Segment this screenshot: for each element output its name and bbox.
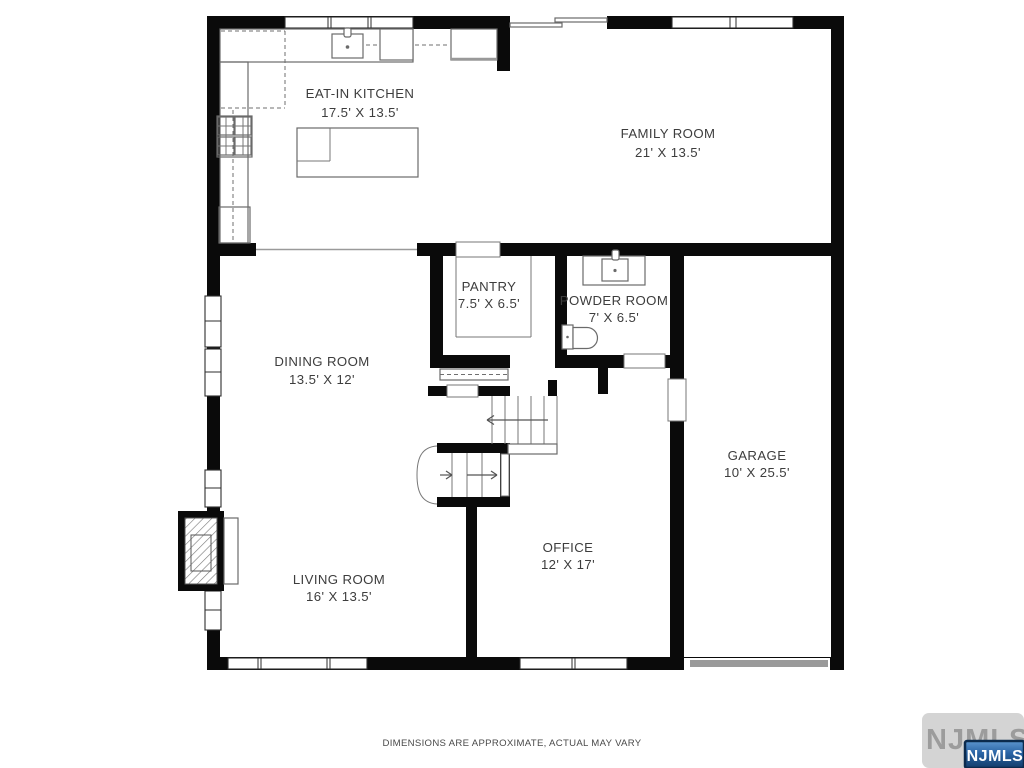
powder-room-door xyxy=(624,354,665,368)
wall-pantry-bottom xyxy=(430,355,510,368)
room-label-dining-room: DINING ROOM xyxy=(274,354,369,369)
stair-landing xyxy=(508,444,557,454)
room-label-family-room: FAMILY ROOM xyxy=(621,126,716,141)
wall-office-living xyxy=(466,507,477,658)
wall-garage-left xyxy=(670,243,684,658)
room-dims-pantry: 7.5' X 6.5' xyxy=(458,296,520,311)
staircase-down xyxy=(417,446,497,504)
wall-pantry-left xyxy=(430,256,443,355)
garage-door xyxy=(684,658,830,670)
room-dims-garage: 10' X 25.5' xyxy=(724,465,790,480)
wall-basement-stair-bottom xyxy=(437,497,510,507)
room-dims-office: 12' X 17' xyxy=(541,557,595,572)
garage-entry-door xyxy=(668,379,686,421)
stove xyxy=(217,116,252,157)
kitchen-fixtures xyxy=(217,28,497,243)
office-window xyxy=(520,658,627,669)
room-dims-kitchen: 17.5' X 13.5' xyxy=(321,105,399,120)
hall-closet xyxy=(440,369,508,380)
toilet xyxy=(562,325,597,349)
kitchen-island xyxy=(297,128,418,177)
dining-window-upper xyxy=(205,296,221,347)
pantry-opening xyxy=(456,242,500,257)
floor-plan-page: EAT-IN KITCHEN 17.5' X 13.5' FAMILY ROOM… xyxy=(0,0,1024,768)
family-room-window xyxy=(672,17,793,28)
range-appliance xyxy=(380,29,413,60)
room-label-garage: GARAGE xyxy=(728,448,787,463)
room-dims-dining-room: 13.5' X 12' xyxy=(289,372,355,387)
room-label-powder-room: POWDER ROOM xyxy=(560,293,668,308)
room-dims-living-room: 16' X 13.5' xyxy=(306,589,372,604)
wall-stair-right-stub xyxy=(548,380,557,396)
base-cabinet xyxy=(219,207,250,243)
njmls-badge: NJMLS xyxy=(965,741,1024,768)
njmls-badge-text: NJMLS xyxy=(967,748,1024,765)
kitchen-window xyxy=(285,17,413,28)
refrigerator xyxy=(451,29,497,60)
basement-stair-door xyxy=(501,454,509,496)
wall-kitchen-dining xyxy=(213,243,256,256)
room-label-kitchen: EAT-IN KITCHEN xyxy=(306,86,415,101)
room-label-living-room: LIVING ROOM xyxy=(293,572,385,587)
floor-plan: EAT-IN KITCHEN 17.5' X 13.5' FAMILY ROOM… xyxy=(0,0,1024,768)
living-side-window xyxy=(205,591,221,630)
dining-window-lower xyxy=(205,349,221,396)
room-dims-family-room: 21' X 13.5' xyxy=(635,145,701,160)
living-front-window xyxy=(228,658,367,669)
sliding-door xyxy=(510,16,607,29)
fireplace-hearth xyxy=(224,518,238,584)
disclaimer-text: DIMENSIONS ARE APPROXIMATE, ACTUAL MAY V… xyxy=(382,738,641,749)
fireplace xyxy=(178,511,238,591)
side-window-hall xyxy=(205,470,221,507)
closet-door xyxy=(447,385,478,397)
room-dims-powder-room: 7' X 6.5' xyxy=(589,310,639,325)
wall-stub-kitchen xyxy=(497,16,510,71)
wall-stub-hall xyxy=(598,368,608,394)
kitchen-sink xyxy=(332,28,363,58)
wall-basement-stair-top xyxy=(437,443,510,453)
room-label-pantry: PANTRY xyxy=(462,279,517,294)
room-label-office: OFFICE xyxy=(543,540,594,555)
